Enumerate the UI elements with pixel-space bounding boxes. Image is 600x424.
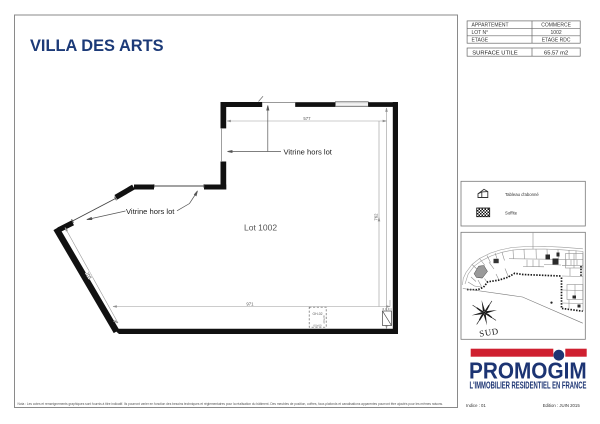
svg-text:Indice : 01: Indice : 01	[466, 403, 486, 408]
svg-text:Nota : Les cotes et renseignem: Nota : Les cotes et renseignements graph…	[18, 402, 444, 406]
svg-text:20x20: 20x20	[322, 315, 326, 324]
svg-text:60x60: 60x60	[313, 323, 322, 327]
svg-text:Vitrine hors lot: Vitrine hors lot	[126, 207, 175, 216]
svg-text:577: 577	[303, 116, 311, 121]
svg-text:762: 762	[374, 213, 379, 221]
svg-text:VILLA DES ARTS: VILLA DES ARTS	[30, 37, 164, 55]
svg-text:COMMERCE: COMMERCE	[541, 23, 571, 29]
svg-text:SURFACE UTILE: SURFACE UTILE	[472, 50, 518, 56]
svg-text:L'IMMOBILIER RESIDENTIEL EN FR: L'IMMOBILIER RESIDENTIEL EN FRANCE	[470, 380, 587, 392]
svg-text:GH-02: GH-02	[313, 312, 323, 316]
svg-text:LOT N°: LOT N°	[472, 30, 489, 36]
svg-text:ETAGE: ETAGE	[472, 37, 489, 43]
svg-text:Vitrine hors lot: Vitrine hors lot	[284, 147, 333, 156]
svg-text:Edition : JUIN 2015: Edition : JUIN 2015	[543, 403, 581, 408]
svg-text:ETAGE RDC: ETAGE RDC	[542, 37, 571, 43]
svg-text:65.57 m2: 65.57 m2	[544, 50, 568, 56]
svg-text:Tableau d'abonné: Tableau d'abonné	[505, 192, 539, 197]
svg-text:Lot 1002: Lot 1002	[244, 223, 277, 233]
svg-text:1002: 1002	[551, 30, 562, 36]
svg-text:APPARTEMENT: APPARTEMENT	[472, 23, 509, 29]
svg-text:971: 971	[246, 302, 254, 307]
svg-text:Soffite: Soffite	[505, 211, 518, 216]
svg-text:SUD: SUD	[479, 326, 500, 339]
